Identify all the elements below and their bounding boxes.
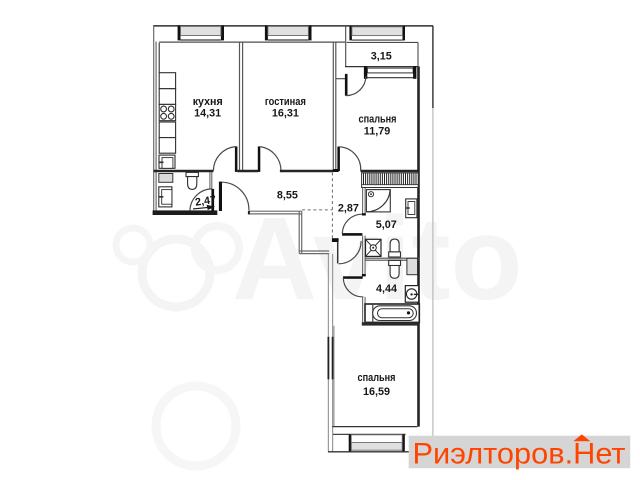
svg-text:кухня: кухня — [193, 96, 223, 108]
svg-text:16,31: 16,31 — [272, 108, 299, 120]
svg-text:гостиная: гостиная — [265, 96, 306, 108]
svg-text:4,44: 4,44 — [376, 283, 397, 295]
svg-text:спальня: спальня — [358, 372, 396, 384]
svg-text:14,31: 14,31 — [194, 108, 221, 120]
svg-text:2,87: 2,87 — [338, 203, 359, 215]
svg-text:3,15: 3,15 — [371, 51, 392, 63]
svg-text:11,79: 11,79 — [364, 126, 390, 138]
svg-text:Риэлторов.Нет: Риэлторов.Нет — [413, 437, 626, 470]
svg-text:спальня: спальня — [359, 114, 397, 126]
svg-text:8,55: 8,55 — [277, 189, 298, 201]
svg-text:5,07: 5,07 — [376, 219, 397, 231]
svg-text:16,59: 16,59 — [363, 386, 390, 398]
